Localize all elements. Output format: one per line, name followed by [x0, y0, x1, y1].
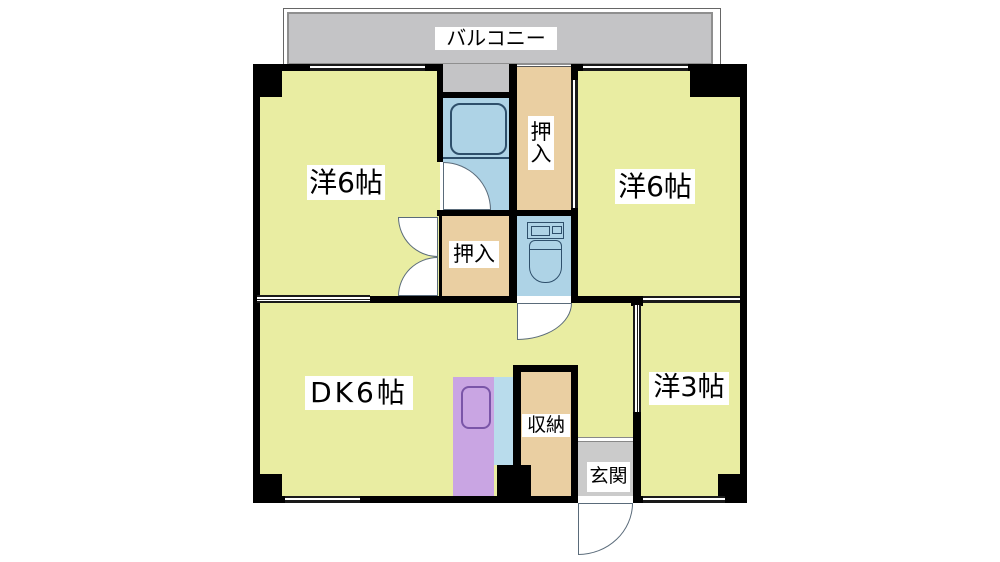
- closet-upper-label: 押入: [528, 116, 554, 170]
- window-north-left: [310, 64, 425, 71]
- window-north-right: [583, 64, 688, 71]
- entrance-label: 玄関: [587, 462, 630, 492]
- wall-middle-center: [370, 296, 517, 303]
- wall-storage-top: [513, 365, 578, 372]
- balcony-label: バルコニー: [435, 27, 557, 50]
- window-south-left: [285, 496, 360, 503]
- wall-bathroom-left: [437, 98, 443, 162]
- wall-storage-left: [513, 365, 521, 465]
- entrance-door-swing: [578, 503, 633, 555]
- wall-partition-bottom: [633, 412, 641, 496]
- sliding-door-rooms-east: [643, 296, 740, 303]
- toilet-tank-lid: [531, 226, 550, 236]
- room-se-label: 洋3帖: [649, 372, 729, 405]
- dk-label: DK6帖: [305, 376, 413, 410]
- counter-strip: [494, 377, 513, 465]
- bathroom-divider-line: [443, 157, 509, 159]
- entrance-step-line: [578, 437, 633, 442]
- wall-storage-block: [497, 465, 531, 496]
- wall-left: [253, 64, 260, 503]
- toilet-tank-button: [552, 226, 562, 234]
- sliding-door-closet-upper: [571, 80, 578, 208]
- floor-plan: バルコニー 洋6帖 洋6帖 押入 押入 DK6帖 収納 玄関 洋3帖: [0, 0, 1000, 562]
- wall-bathroom-top: [437, 92, 517, 98]
- pillar-top-left: [253, 64, 282, 97]
- sliding-door-room-se: [633, 305, 641, 412]
- room-ne-label: 洋6帖: [615, 169, 695, 204]
- bathtub: [450, 103, 507, 155]
- closet-lower-label: 押入: [449, 241, 499, 268]
- storage-label: 収納: [522, 414, 570, 437]
- balcony-recess: [443, 64, 509, 94]
- wall-closet-lower-left: [439, 216, 442, 296]
- room-nw-label: 洋6帖: [307, 165, 385, 200]
- wall-right: [740, 64, 747, 503]
- wall-partition-top: [633, 296, 641, 305]
- wall-center-column: [509, 98, 517, 296]
- toilet-tank: [527, 222, 564, 239]
- pillar-top-right: [690, 64, 747, 97]
- wall-storage-right: [571, 365, 578, 496]
- window-south-right: [643, 496, 725, 503]
- sliding-door-room-dk: [257, 295, 370, 303]
- wall-closet-upper-right-stub: [571, 64, 578, 80]
- wall-toilet-right: [571, 208, 578, 303]
- toilet-bowl: [529, 240, 562, 283]
- kitchen-sink: [461, 386, 491, 429]
- wall-bath-closet-divider: [437, 210, 578, 216]
- toilet-seat-line: [530, 249, 561, 250]
- pillar-bottom-left: [253, 474, 282, 503]
